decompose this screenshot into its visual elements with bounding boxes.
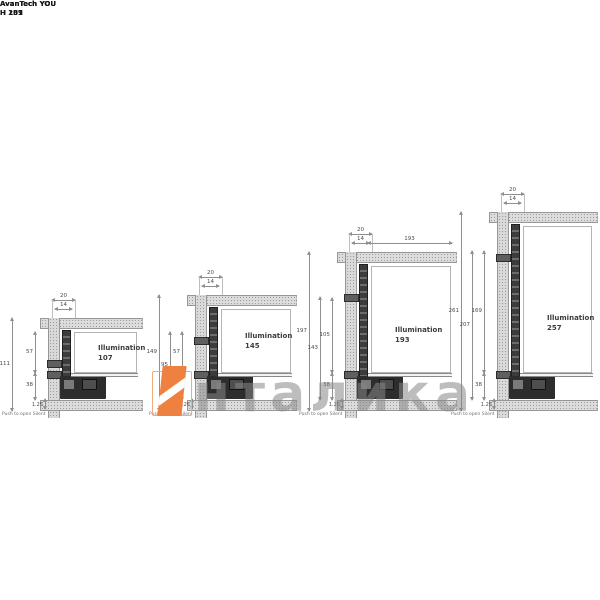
- drawing-sheet: AvanTech YOU H 101 Illumination 107 111 …: [0, 0, 600, 600]
- illumination-caption: Illumination 257: [547, 314, 594, 333]
- dim-line-outer-chain: [472, 251, 473, 400]
- bottom-gap-label: 1.25: [475, 402, 492, 408]
- runner-bracket-upper: [496, 254, 511, 262]
- drawer-bottom-panel: [520, 373, 593, 377]
- dim-line-lower-segment: [484, 373, 485, 400]
- dim-label-top-14: 14: [502, 196, 523, 202]
- cabinet-bottom-panel: [489, 400, 598, 411]
- extension-line-right: [524, 194, 525, 212]
- dim-label-lower-segment: 38: [470, 382, 482, 388]
- dim-label-top-20: 20: [502, 187, 523, 193]
- drawer-side-profile: [511, 224, 520, 399]
- illumination-area: [523, 226, 592, 373]
- dim-label-outer-chain: 207: [458, 322, 470, 328]
- dim-line-top-14: [504, 203, 521, 204]
- cabinet-side-wall: [497, 212, 509, 418]
- illumination-value: 257: [547, 324, 594, 334]
- dim-line-upper-segment: [484, 251, 485, 373]
- drawing-title: AvanTech YOU H 251: [0, 0, 56, 17]
- dim-line-total-height: [461, 212, 462, 411]
- technical-drawing: AvanTech YOU H 251 Illumination 257 261 …: [0, 0, 600, 600]
- push-to-open-note: Push to open Silent: [451, 412, 511, 417]
- illumination-label: Illumination: [547, 314, 594, 324]
- model-height: H 251: [0, 9, 56, 18]
- dim-line-bottom-gap: [494, 399, 495, 409]
- dim-label-upper-segment: 169: [470, 308, 482, 314]
- extension-line-left: [501, 194, 502, 212]
- dim-label-total-height: 261: [441, 308, 459, 314]
- product-name: AvanTech YOU: [0, 0, 56, 9]
- runner-mechanism: [509, 376, 555, 399]
- dim-line-top-20: [501, 194, 524, 195]
